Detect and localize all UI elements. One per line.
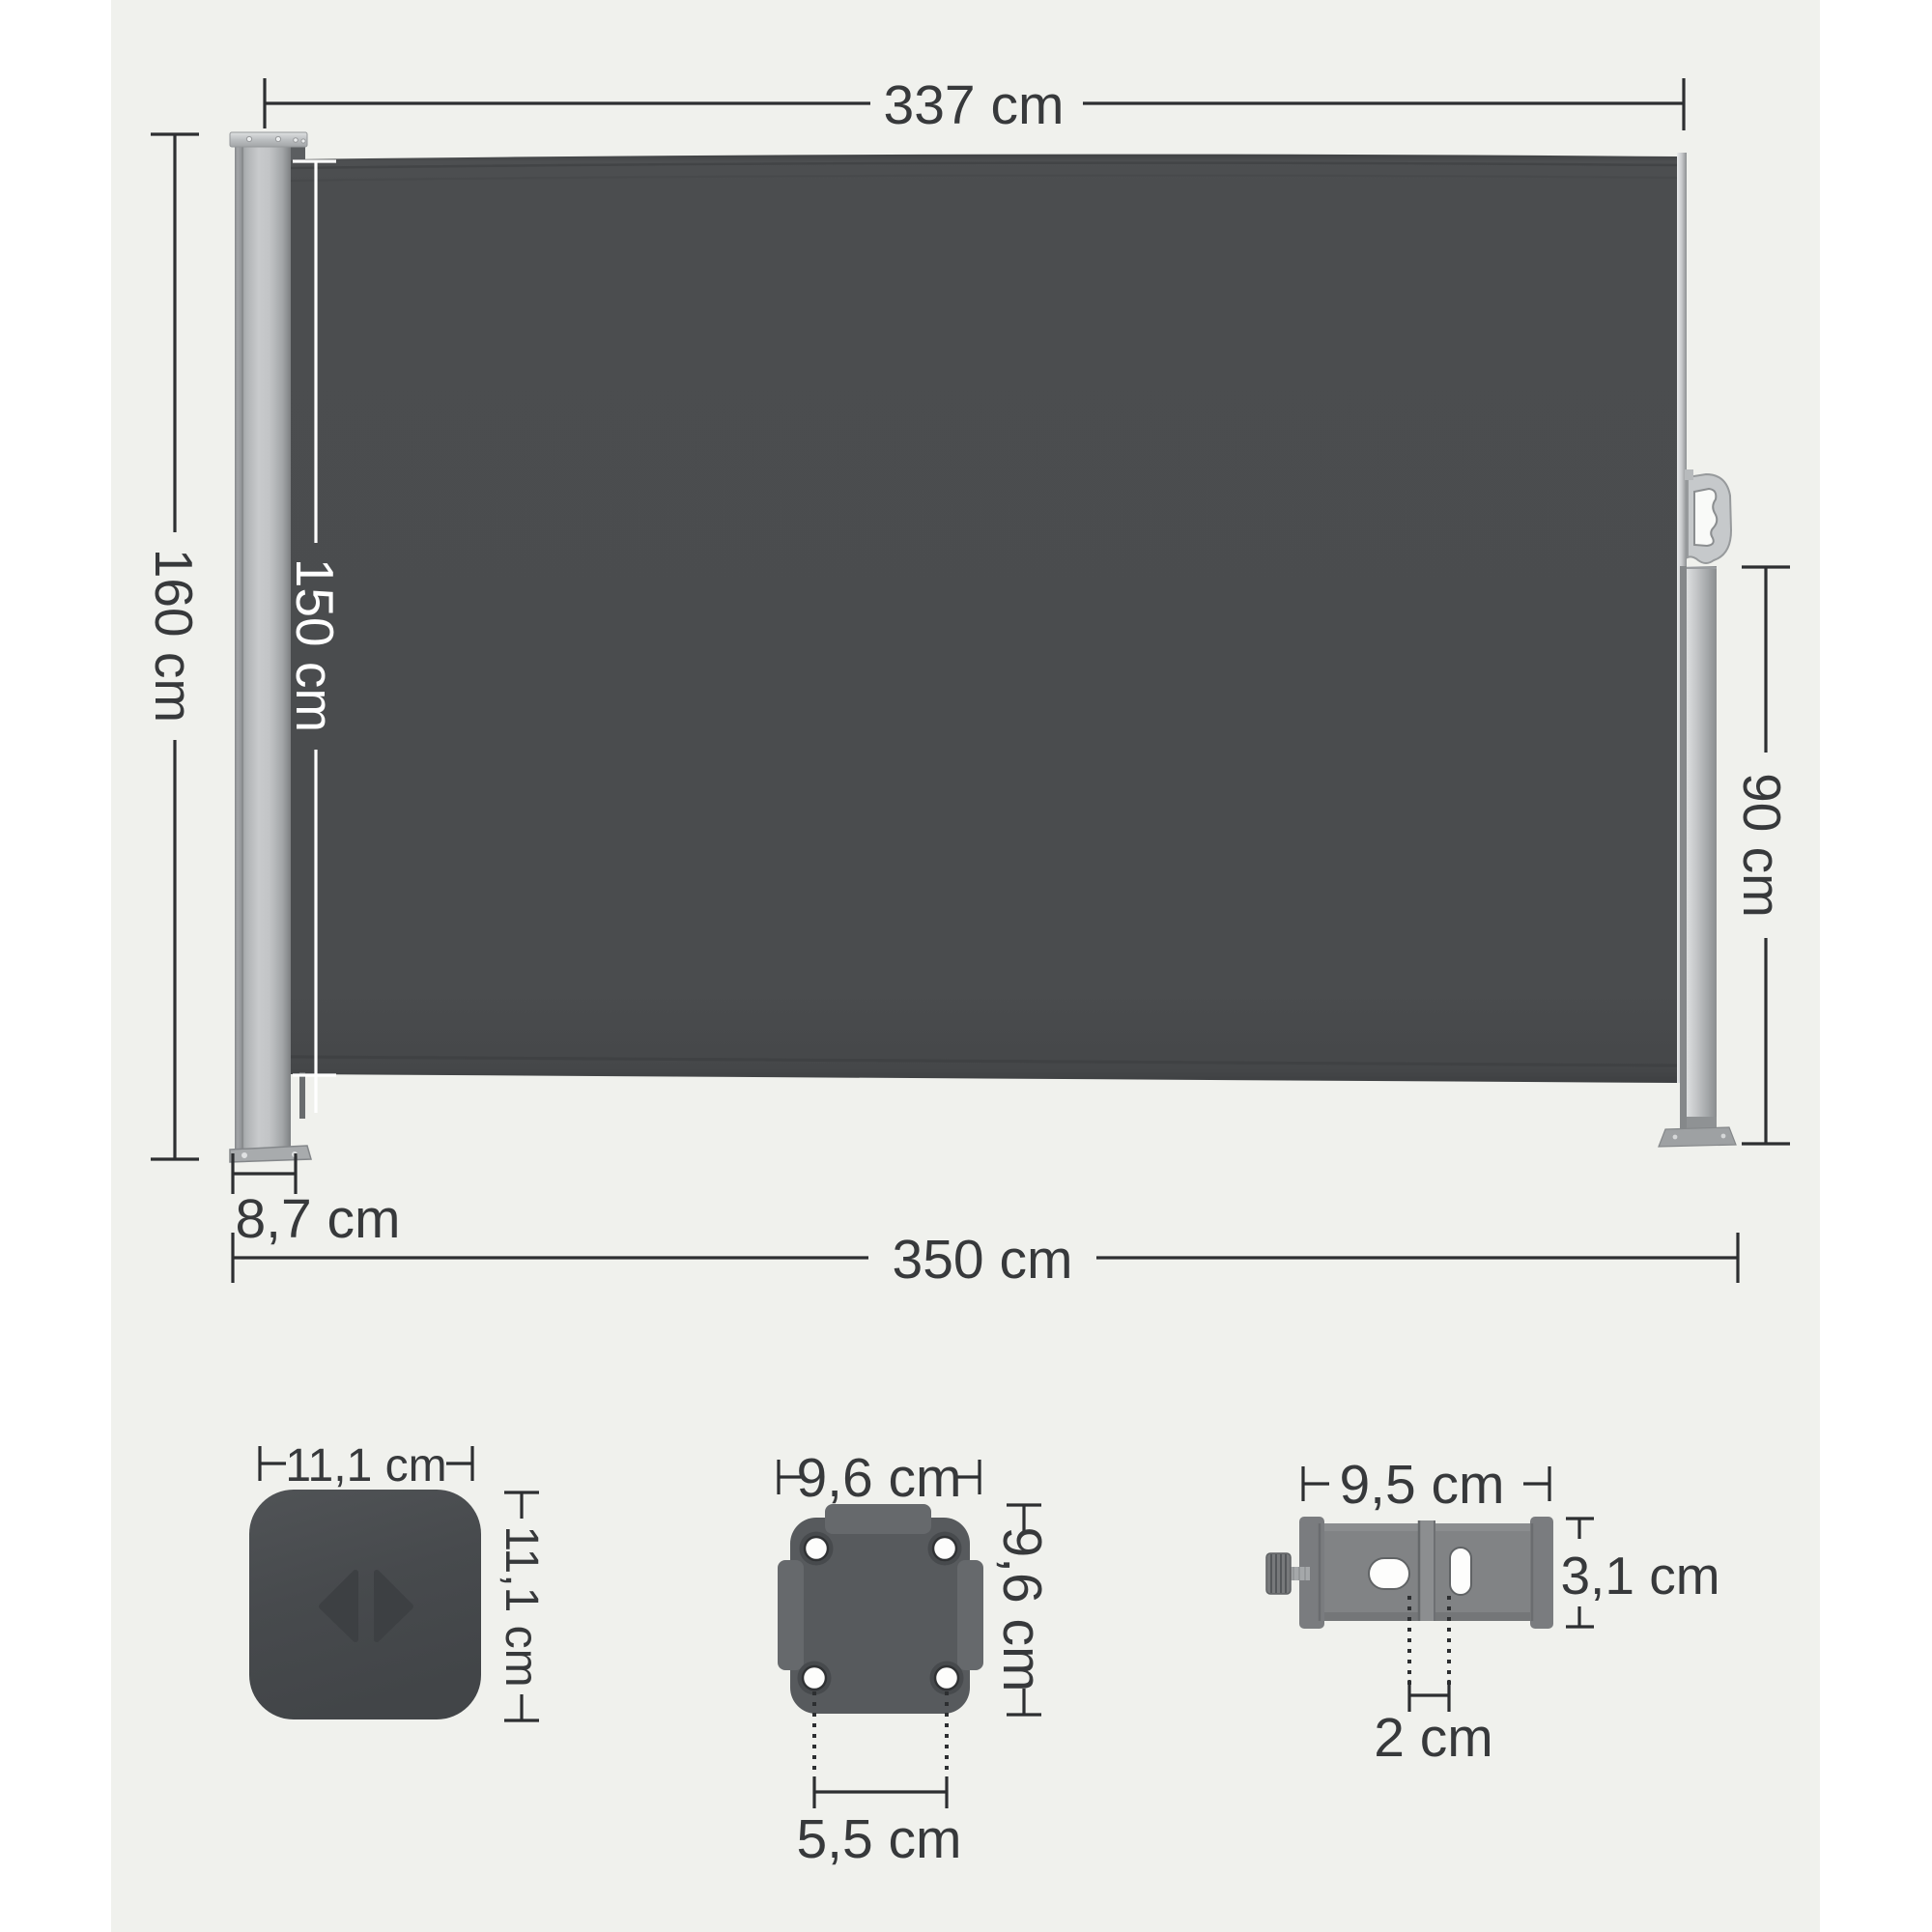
svg-text:9,6 cm: 9,6 cm (991, 1526, 1053, 1691)
svg-text:2 cm: 2 cm (1374, 1707, 1493, 1769)
svg-text:9,5 cm: 9,5 cm (1339, 1454, 1504, 1516)
svg-text:3,1 cm: 3,1 cm (1560, 1546, 1719, 1605)
svg-text:337 cm: 337 cm (884, 74, 1065, 136)
svg-text:8,7 cm: 8,7 cm (235, 1188, 400, 1250)
svg-text:11,1 cm: 11,1 cm (285, 1440, 446, 1492)
svg-text:90 cm: 90 cm (1732, 773, 1792, 918)
svg-text:150 cm: 150 cm (285, 558, 345, 732)
svg-text:11,1 cm: 11,1 cm (496, 1525, 547, 1687)
svg-text:9,6 cm: 9,6 cm (796, 1447, 961, 1509)
svg-text:5,5 cm: 5,5 cm (796, 1808, 961, 1870)
svg-text:350 cm: 350 cm (893, 1229, 1073, 1291)
svg-text:160 cm: 160 cm (144, 549, 204, 723)
